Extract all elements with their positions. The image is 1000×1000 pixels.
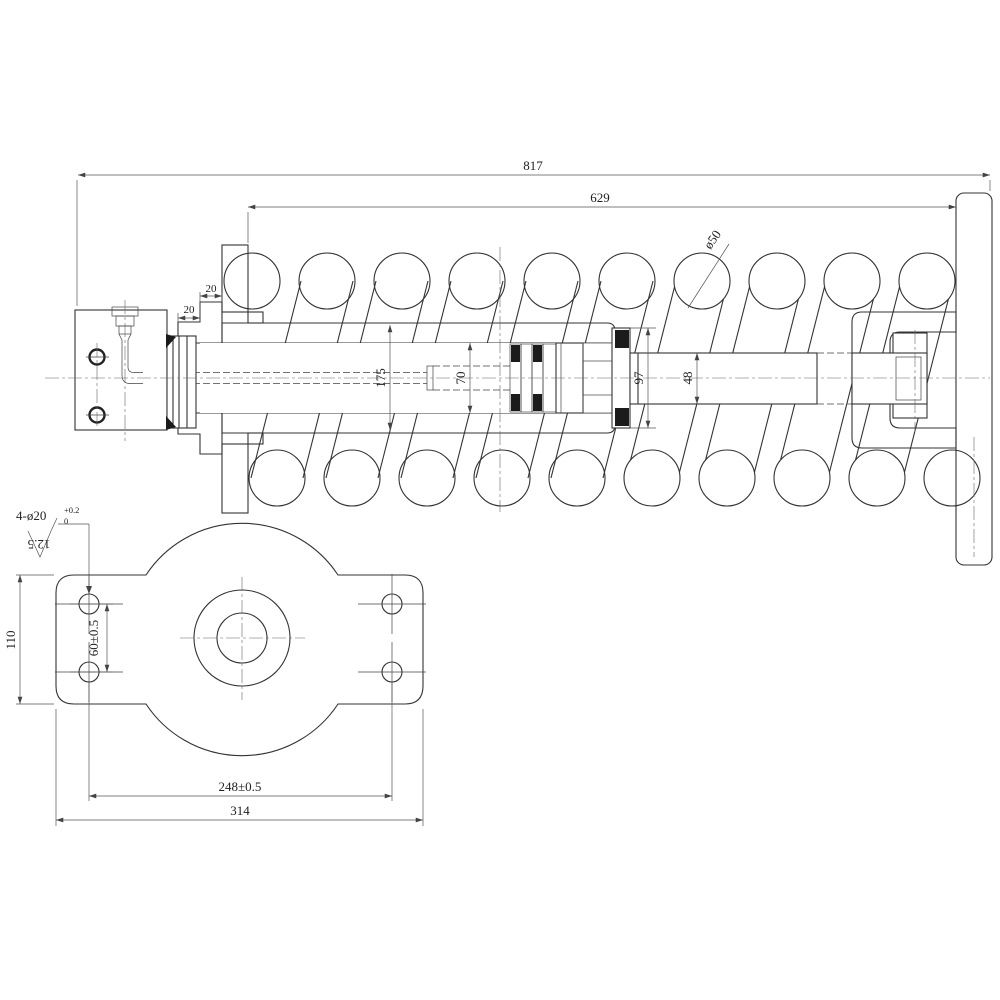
dim-bolt-holes-tol-upper: +0.2: [64, 505, 79, 515]
dim-barrel-od: 175: [373, 368, 388, 388]
roughness-symbol: 12.5: [28, 518, 57, 557]
dim-wire-diameter: ø50: [701, 227, 724, 252]
mount-holes: [55, 574, 426, 702]
dim-flange-step-a: 20: [206, 283, 218, 295]
dim-bolt-holes-tol-lower: 0: [64, 516, 68, 526]
dim-hole-spacing-h: 248±0.5: [219, 779, 262, 794]
drawing-canvas: 817 629 ø50 20 20 175 70 97 48: [0, 0, 1000, 1000]
dim-gland-dia: 97: [631, 371, 646, 385]
dim-flange-step-b: 20: [184, 304, 196, 316]
dim-bore-dia: 70: [453, 372, 468, 385]
bottom-center-lines: [180, 577, 305, 700]
spring-wire-sections-bottom: [249, 450, 980, 506]
dim-spring-length: 629: [590, 190, 610, 205]
dim-plate-width: 314: [230, 803, 250, 818]
dim-plate-height: 110: [3, 630, 18, 649]
piston-rod: [630, 353, 853, 404]
bottom-plate-view: 4-ø20 +0.2 0 12.5 110 60±0.5 248±0.5: [3, 505, 426, 826]
dim-bolt-holes: 4-ø20: [16, 508, 46, 523]
spring-wire-sections-top: [224, 253, 955, 309]
rod-end-retainer: [852, 312, 956, 448]
dim-roughness: 12.5: [28, 537, 51, 552]
dim-rod-dia: 48: [680, 372, 695, 385]
cad-drawing: 817 629 ø50 20 20 175 70 97 48: [0, 0, 1000, 1000]
plate-outline: [56, 523, 423, 755]
dim-hole-spacing-v: 60±0.5: [86, 620, 101, 656]
dim-overall-length: 817: [523, 158, 543, 173]
bottom-view-dimensions: 4-ø20 +0.2 0 12.5 110 60±0.5 248±0.5: [3, 505, 423, 826]
side-section-view: 817 629 ø50 20 20 175 70 97 48: [45, 158, 992, 565]
